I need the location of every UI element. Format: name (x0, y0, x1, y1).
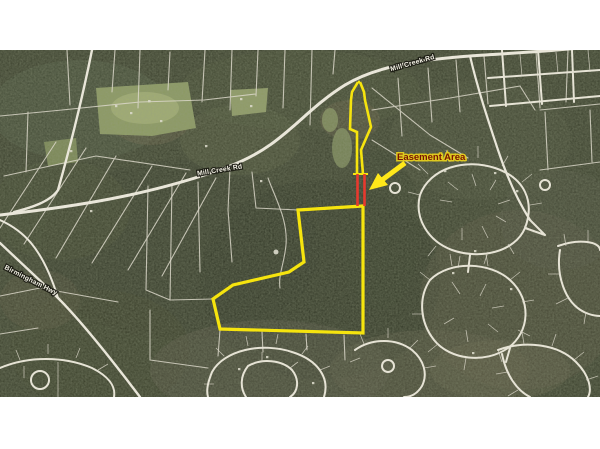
aerial-map: Mill Creek Rd Mill Creek Rd Mill Creek R… (0, 50, 600, 397)
easement-label-text: Easement Area (397, 152, 466, 163)
driveway-pad (274, 250, 279, 255)
easement-label: Easement Area Easement Area (397, 152, 466, 163)
aerial-map-canvas: Mill Creek Rd Mill Creek Rd Mill Creek R… (0, 50, 600, 397)
document-page: Mill Creek Rd Mill Creek Rd Mill Creek R… (0, 0, 600, 449)
